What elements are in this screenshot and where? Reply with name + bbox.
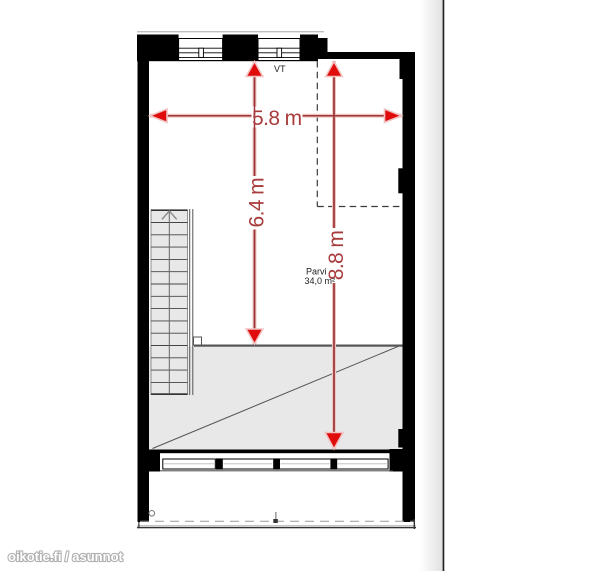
svg-text:6.4 m: 6.4 m	[246, 178, 269, 228]
svg-text:Parvi: Parvi	[306, 267, 327, 277]
svg-text:oikotie.fi / asunnot: oikotie.fi / asunnot	[8, 549, 124, 564]
svg-text:34,0 m²: 34,0 m²	[305, 276, 336, 286]
svg-text:8.8 m: 8.8 m	[325, 231, 348, 281]
svg-text:VT: VT	[274, 64, 286, 74]
svg-text:5.8 m: 5.8 m	[252, 107, 302, 130]
